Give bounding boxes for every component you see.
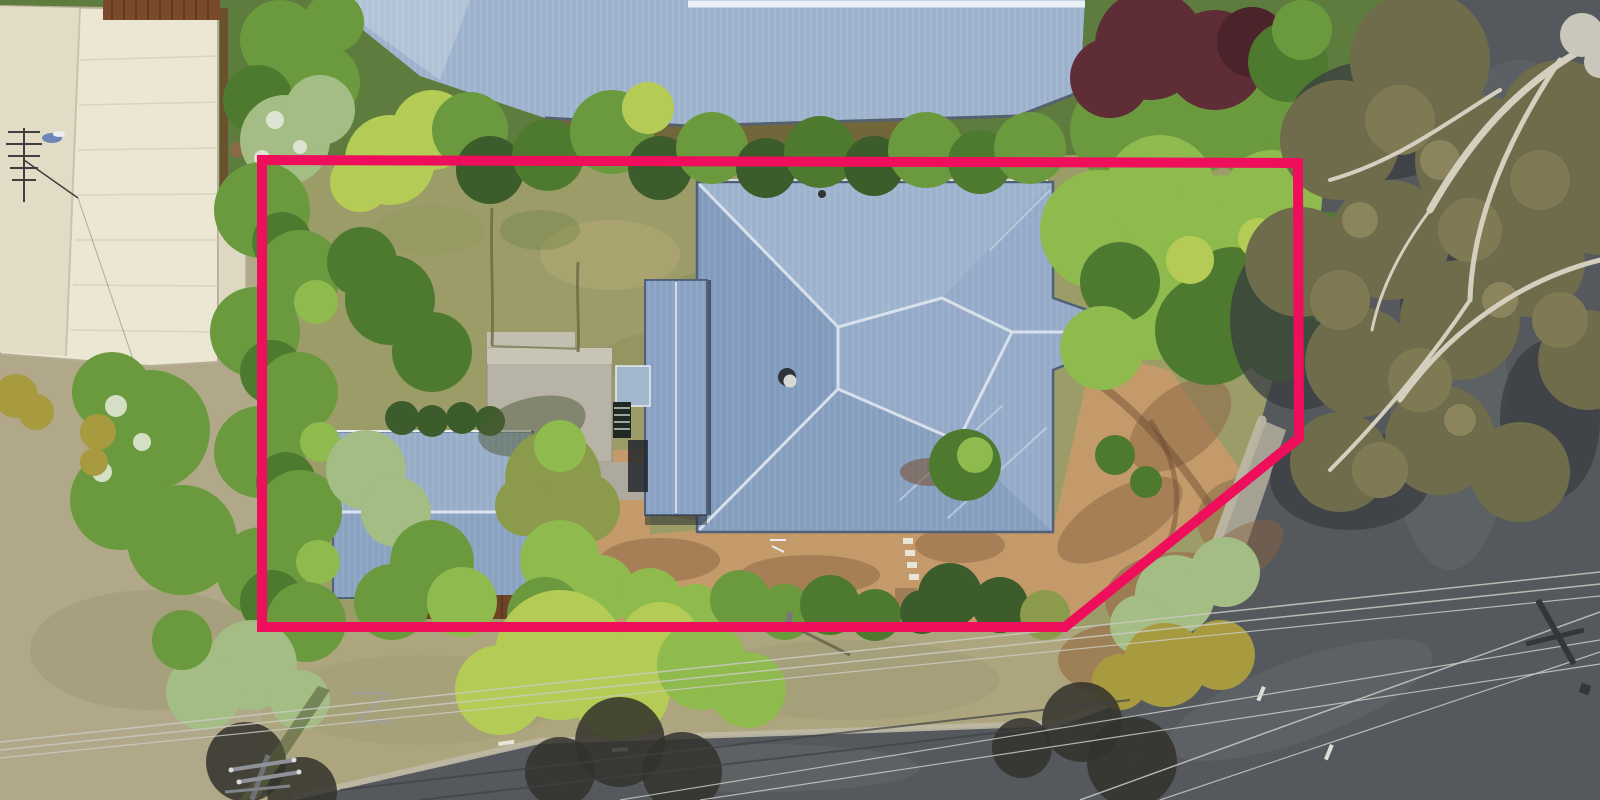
roof-vent bbox=[818, 190, 826, 198]
stair-slats bbox=[613, 402, 631, 438]
patio-light-band bbox=[487, 348, 612, 364]
wing-south-shadow bbox=[645, 515, 707, 525]
timber-deck bbox=[103, 0, 220, 20]
corrugation bbox=[697, 182, 1093, 532]
garden-trench bbox=[577, 262, 578, 352]
entry-shadow bbox=[628, 440, 648, 492]
garden-trench bbox=[491, 208, 492, 346]
maroon-tree bbox=[1070, 0, 1332, 118]
chimney-cap bbox=[784, 375, 797, 388]
aerial-photo bbox=[0, 0, 1600, 800]
aerial-photo-canvas bbox=[0, 0, 1600, 800]
porch-awning bbox=[616, 366, 650, 406]
